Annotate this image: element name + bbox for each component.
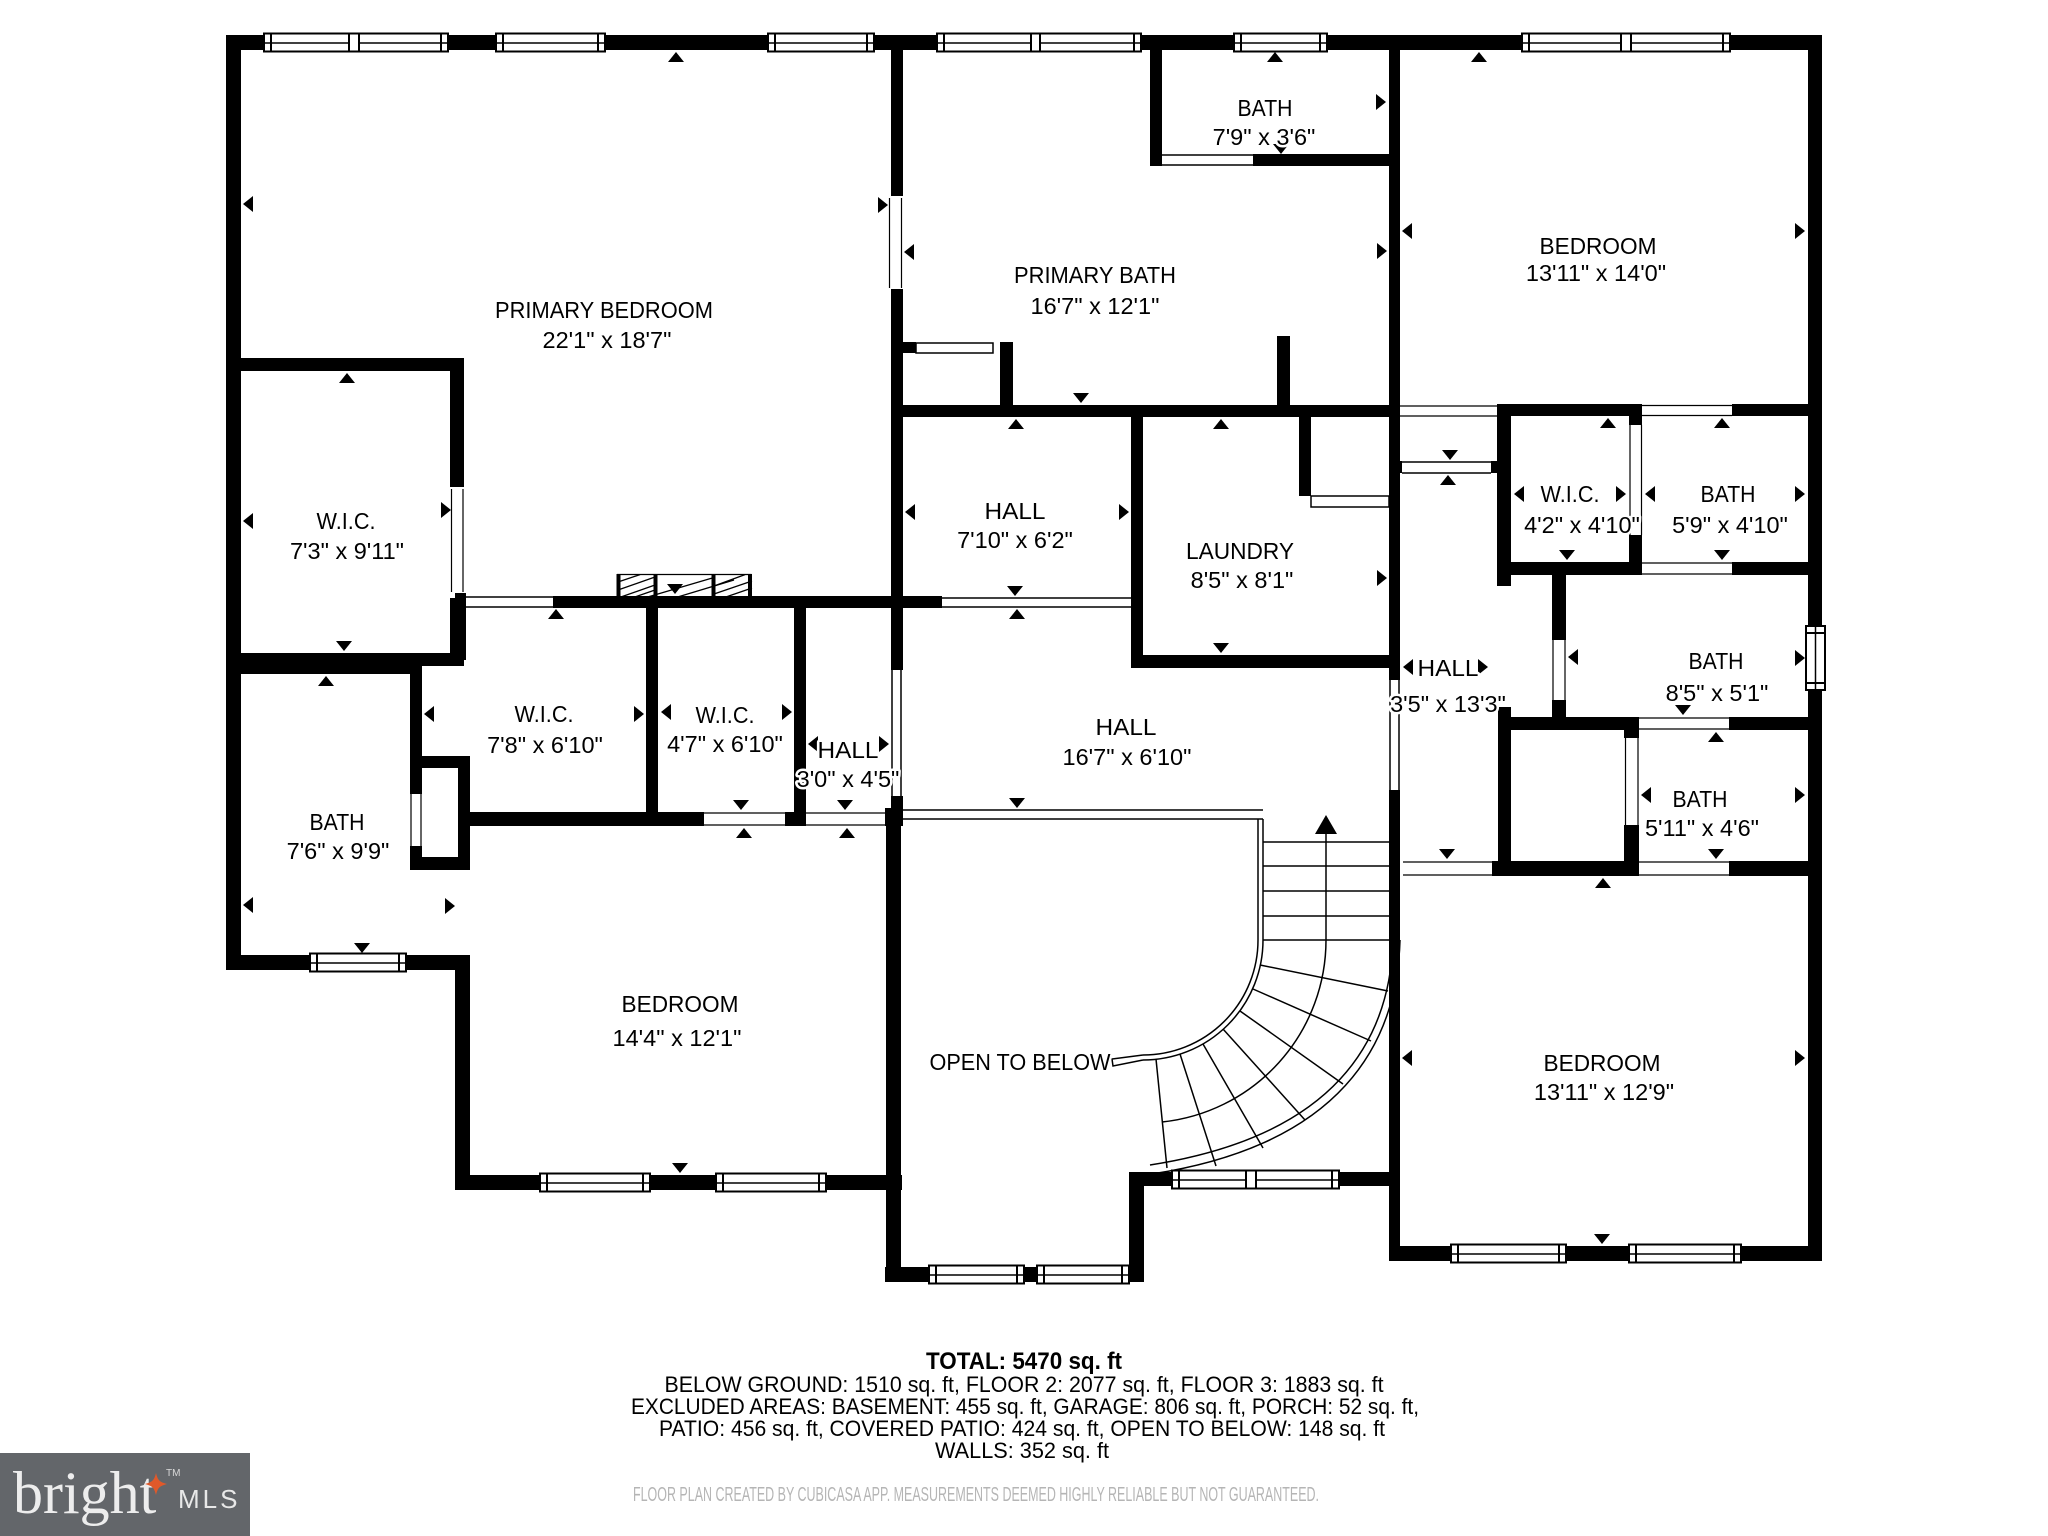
svg-text:WALLS: 352 sq. ft: WALLS: 352 sq. ft xyxy=(935,1438,1110,1463)
svg-text:W.I.C.: W.I.C. xyxy=(515,701,574,727)
svg-text:BATH: BATH xyxy=(1673,786,1728,812)
svg-text:BATH: BATH xyxy=(1689,648,1744,674)
svg-text:PRIMARY BATH: PRIMARY BATH xyxy=(1014,262,1176,288)
svg-text:W.I.C.: W.I.C. xyxy=(696,702,755,728)
svg-text:TOTAL: 5470 sq. ft: TOTAL: 5470 sq. ft xyxy=(926,1348,1122,1375)
svg-text:7'6" x 9'9": 7'6" x 9'9" xyxy=(287,838,390,864)
svg-text:HALL: HALL xyxy=(1418,655,1479,681)
svg-text:7'9" x 3'6": 7'9" x 3'6" xyxy=(1213,124,1316,150)
svg-text:8'5" x 8'1": 8'5" x 8'1" xyxy=(1191,567,1294,593)
svg-text:HALL: HALL xyxy=(985,498,1046,524)
svg-text:bright: bright xyxy=(13,1460,157,1526)
svg-text:13'11" x 12'9": 13'11" x 12'9" xyxy=(1534,1079,1674,1105)
svg-text:FLOOR PLAN CREATED BY CUBICASA: FLOOR PLAN CREATED BY CUBICASA APP. MEAS… xyxy=(633,1483,1319,1506)
svg-text:8'5" x 5'1": 8'5" x 5'1" xyxy=(1666,680,1769,706)
svg-text:BEDROOM: BEDROOM xyxy=(1544,1050,1661,1076)
svg-text:W.I.C.: W.I.C. xyxy=(1541,481,1600,507)
svg-text:TM: TM xyxy=(166,1468,180,1479)
svg-text:PRIMARY BEDROOM: PRIMARY BEDROOM xyxy=(495,297,713,323)
svg-text:16'7" x 6'10": 16'7" x 6'10" xyxy=(1063,744,1192,770)
svg-text:5'9" x 4'10": 5'9" x 4'10" xyxy=(1672,512,1788,538)
svg-text:HALL: HALL xyxy=(818,737,879,763)
svg-text:BATH: BATH xyxy=(1701,481,1756,507)
svg-text:7'10" x 6'2": 7'10" x 6'2" xyxy=(957,527,1073,553)
svg-text:14'4" x 12'1": 14'4" x 12'1" xyxy=(613,1025,742,1051)
svg-text:7'8" x 6'10": 7'8" x 6'10" xyxy=(487,732,603,758)
svg-text:22'1" x 18'7": 22'1" x 18'7" xyxy=(543,327,672,353)
svg-text:BEDROOM: BEDROOM xyxy=(622,991,739,1017)
svg-text:OPEN TO BELOW: OPEN TO BELOW xyxy=(930,1049,1112,1075)
svg-text:MLS: MLS xyxy=(178,1484,240,1514)
svg-text:LAUNDRY: LAUNDRY xyxy=(1186,538,1294,564)
svg-text:W.I.C.: W.I.C. xyxy=(317,508,376,534)
svg-text:13'11" x 14'0": 13'11" x 14'0" xyxy=(1526,260,1666,286)
svg-text:3'5" x 13'3": 3'5" x 13'3" xyxy=(1390,691,1506,717)
svg-text:BATH: BATH xyxy=(310,809,365,835)
svg-text:BEDROOM: BEDROOM xyxy=(1540,233,1657,259)
svg-text:HALL: HALL xyxy=(1096,714,1157,740)
svg-text:3'0" x 4'5": 3'0" x 4'5" xyxy=(797,766,900,792)
svg-text:4'7" x 6'10": 4'7" x 6'10" xyxy=(667,731,783,757)
svg-text:7'3" x 9'11": 7'3" x 9'11" xyxy=(290,538,404,564)
svg-text:16'7" x 12'1": 16'7" x 12'1" xyxy=(1031,293,1160,319)
svg-text:4'2" x 4'10": 4'2" x 4'10" xyxy=(1524,512,1640,538)
svg-text:5'11" x 4'6": 5'11" x 4'6" xyxy=(1645,815,1759,841)
svg-text:BATH: BATH xyxy=(1238,95,1293,121)
